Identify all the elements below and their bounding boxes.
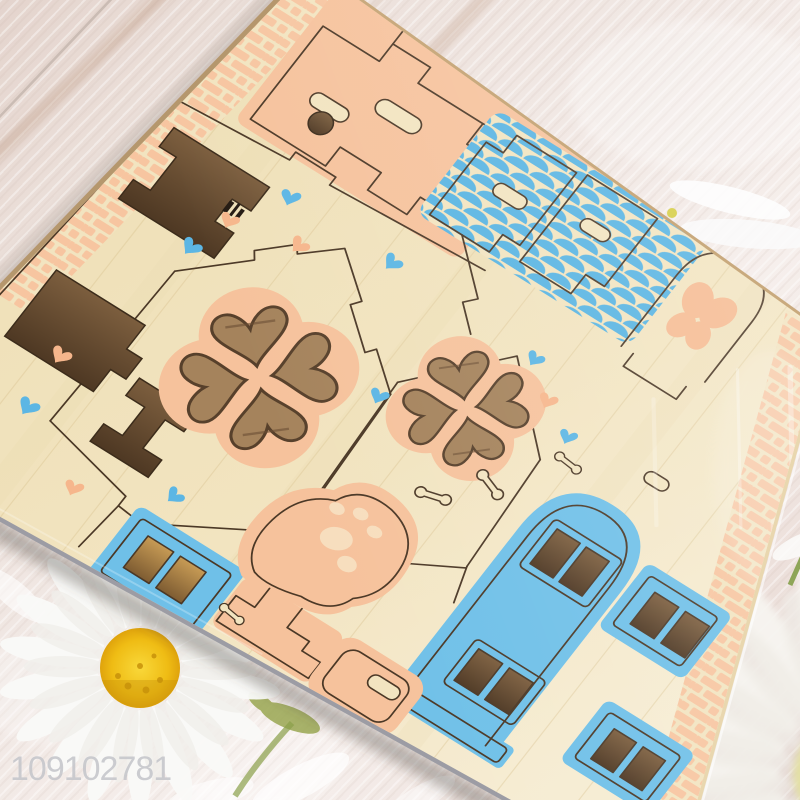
product-photo: 109102781	[0, 0, 800, 800]
watermark: 109102781	[10, 750, 171, 789]
